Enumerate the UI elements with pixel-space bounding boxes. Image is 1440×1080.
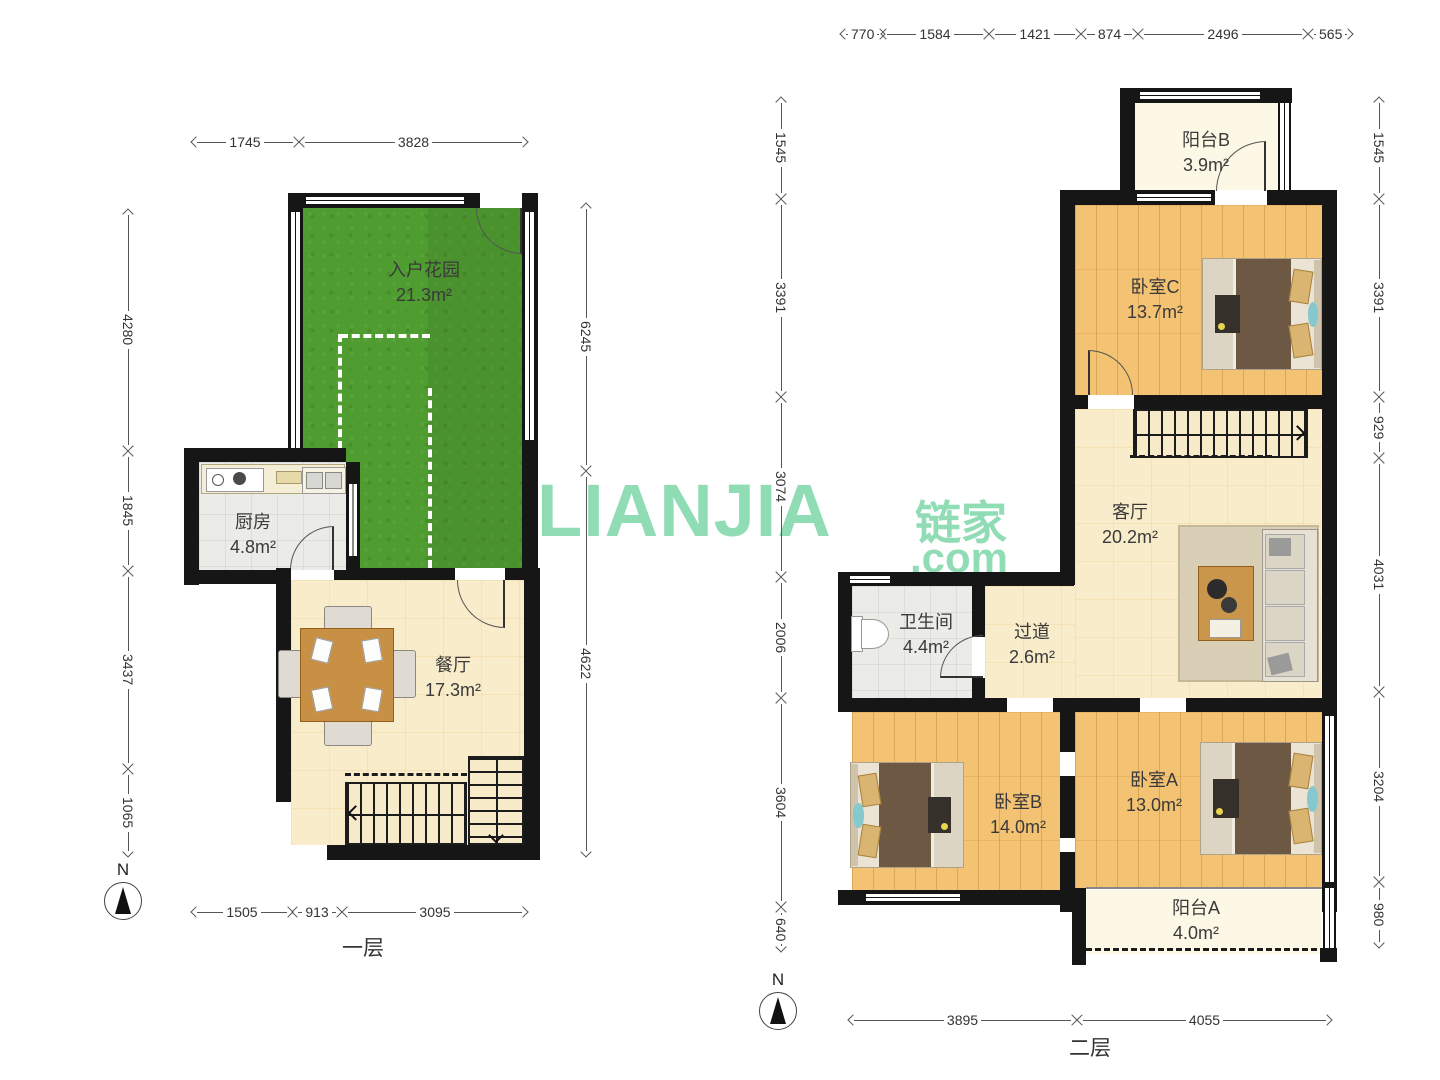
- stair-arrow-icon: [488, 828, 504, 844]
- door-opening: [1215, 190, 1267, 205]
- balcony-dashed-edge: [1086, 948, 1326, 951]
- plate-icon: [361, 638, 383, 664]
- room-name: 餐厅: [425, 653, 481, 678]
- wall: [1072, 888, 1086, 965]
- plate-icon: [310, 637, 333, 664]
- bed-duvet: [879, 763, 934, 867]
- stove-icon: [206, 468, 264, 492]
- garden-path: [340, 334, 430, 338]
- dim-left: 1845: [120, 452, 136, 570]
- window: [1323, 716, 1336, 882]
- room-name: 卧室A: [1126, 768, 1182, 793]
- wall: [1074, 698, 1337, 712]
- wall: [327, 845, 540, 860]
- burner-icon: [233, 472, 246, 485]
- tray-icon: [1209, 619, 1241, 638]
- wall: [1120, 88, 1135, 196]
- sink-basin-icon: [306, 472, 323, 489]
- room-area: 17.3m²: [425, 678, 481, 703]
- staircase: [1133, 409, 1308, 458]
- stair-edge-dashed: [345, 773, 467, 776]
- room-area: 4.8m²: [230, 535, 276, 560]
- wall: [972, 585, 985, 637]
- wall: [838, 572, 852, 712]
- chair: [324, 718, 372, 746]
- dim-right: 4031: [1371, 459, 1387, 691]
- room-label-bedroom-c: 卧室C 13.7m²: [1127, 275, 1183, 325]
- throw-pillow-icon: [1269, 538, 1291, 556]
- stair-arrow-icon: [348, 805, 364, 821]
- garden-path: [428, 388, 432, 568]
- window: [347, 484, 359, 556]
- dim-right: 6245: [578, 204, 594, 470]
- floor2-title: 二层: [1069, 1032, 1111, 1062]
- room-label-garden: 入户花园 21.3m²: [388, 258, 460, 308]
- wall-notch: [1060, 752, 1075, 776]
- room-area: 4.4m²: [899, 635, 953, 660]
- room-label-living: 客厅 20.2m²: [1102, 500, 1158, 550]
- staircase: [468, 756, 524, 845]
- dim-top: 874: [1082, 26, 1137, 42]
- window: [1278, 103, 1291, 191]
- bed-tray: [928, 797, 952, 833]
- sofa: [1262, 529, 1318, 682]
- room-label-bathroom: 卫生间 4.4m²: [899, 610, 953, 660]
- wall: [334, 568, 455, 580]
- appliance-icon: [276, 471, 302, 484]
- dim-right: 1545: [1371, 98, 1387, 198]
- room-name: 过道: [1009, 620, 1055, 645]
- window: [1323, 888, 1336, 950]
- compass: N: [104, 860, 142, 920]
- dim-left: 3391: [773, 200, 789, 396]
- room-name: 阳台A: [1172, 896, 1220, 921]
- window: [1140, 90, 1260, 101]
- sink-icon: [302, 467, 346, 494]
- compass-circle: [759, 992, 797, 1030]
- wall: [184, 570, 290, 584]
- dim-top: 770: [841, 26, 880, 42]
- bed: [1200, 742, 1322, 855]
- room-name: 阳台B: [1182, 128, 1230, 153]
- window: [523, 212, 536, 440]
- room-area: 14.0m²: [990, 815, 1046, 840]
- balcony-threshold: [1086, 887, 1322, 889]
- room-label-balcony-a: 阳台A 4.0m²: [1172, 896, 1220, 946]
- decor-icon: [1207, 579, 1227, 599]
- room-area: 13.7m²: [1127, 300, 1183, 325]
- dim-top: 3828: [300, 134, 527, 150]
- stair-centerline: [1135, 434, 1306, 436]
- wall: [1320, 948, 1337, 962]
- sofa-cushion: [1265, 606, 1305, 641]
- room-label-bedroom-b: 卧室B 14.0m²: [990, 790, 1046, 840]
- window: [850, 574, 890, 585]
- stove-knob-icon: [212, 474, 224, 486]
- door-opening: [480, 193, 522, 208]
- sink-basin-icon: [325, 472, 342, 489]
- window: [1137, 192, 1211, 203]
- compass: N: [759, 970, 797, 1030]
- wall-notch: [1060, 838, 1075, 852]
- door-opening: [1140, 698, 1186, 712]
- sofa-cushion: [1265, 570, 1305, 605]
- room-label-bedroom-a: 卧室A 13.0m²: [1126, 768, 1182, 818]
- room-name: 卫生间: [899, 610, 953, 635]
- compass-needle-icon: [770, 997, 786, 1024]
- compass-circle: [104, 882, 142, 920]
- dim-bottom: 3095: [343, 904, 527, 920]
- room-label-kitchen: 厨房 4.8m²: [230, 510, 276, 560]
- dim-top: 1745: [192, 134, 298, 150]
- dim-top: 2496: [1139, 26, 1307, 42]
- wall: [1060, 698, 1075, 912]
- room-area: 21.3m²: [388, 283, 460, 308]
- room-name: 卧室B: [990, 790, 1046, 815]
- dim-right: 3204: [1371, 693, 1387, 881]
- room-label-hallway: 过道 2.6m²: [1009, 620, 1055, 670]
- compass-north-label: N: [772, 970, 784, 989]
- dim-bottom: 3895: [849, 1012, 1076, 1028]
- lamp-icon: [941, 823, 948, 830]
- stair-arrow-icon: [1290, 425, 1306, 441]
- wall: [184, 448, 346, 462]
- window: [289, 212, 302, 452]
- coffee-table: [1198, 566, 1254, 641]
- bed: [850, 762, 964, 868]
- plate-icon: [311, 686, 333, 712]
- dim-top: 1421: [990, 26, 1080, 42]
- room-area: 20.2m²: [1102, 525, 1158, 550]
- bed-duvet: [1233, 259, 1291, 369]
- dim-top: 565: [1309, 26, 1347, 42]
- bed-tray: [1215, 295, 1240, 333]
- dim-right: 3391: [1371, 200, 1387, 396]
- dim-right: 929: [1371, 398, 1387, 457]
- dim-left: 1545: [773, 98, 789, 198]
- stair-centerline: [347, 814, 465, 816]
- bed: [1202, 258, 1322, 370]
- cushion-icon: [853, 803, 863, 827]
- wall: [524, 568, 540, 860]
- room-area: 13.0m²: [1126, 793, 1182, 818]
- wall: [1060, 190, 1075, 585]
- dim-right: 4622: [578, 472, 594, 856]
- door-opening: [1088, 395, 1134, 409]
- dim-left: 2006: [773, 578, 789, 697]
- room-area: 4.0m²: [1172, 921, 1220, 946]
- compass-north-label: N: [117, 860, 129, 879]
- bed-duvet: [1232, 743, 1291, 854]
- stair-edge-dashed: [1130, 455, 1272, 458]
- window: [306, 195, 464, 206]
- dim-bottom: 913: [293, 904, 341, 920]
- lamp-icon: [1216, 808, 1223, 815]
- dim-bottom: 1505: [192, 904, 292, 920]
- lamp-icon: [1218, 323, 1225, 330]
- compass-needle-icon: [115, 887, 131, 914]
- room-label-dining: 餐厅 17.3m²: [425, 653, 481, 703]
- wall: [184, 448, 199, 585]
- room-name: 厨房: [230, 510, 276, 535]
- door-opening: [1007, 698, 1053, 712]
- plate-icon: [361, 687, 383, 713]
- dim-left: 3074: [773, 398, 789, 576]
- staircase: [345, 782, 467, 845]
- dim-left: 3437: [120, 572, 136, 768]
- room-area: 2.6m²: [1009, 645, 1055, 670]
- dim-left: 640: [773, 908, 789, 950]
- room-name: 入户花园: [388, 258, 460, 283]
- dim-top: 1584: [882, 26, 988, 42]
- dim-left: 3604: [773, 699, 789, 906]
- room-name: 客厅: [1102, 500, 1158, 525]
- dim-right: 980: [1371, 883, 1387, 947]
- window: [866, 892, 960, 903]
- decor-icon: [1221, 597, 1237, 613]
- dining-table: [300, 628, 394, 722]
- dim-left: 1065: [120, 770, 136, 856]
- room-area: 3.9m²: [1182, 153, 1230, 178]
- room-label-balcony-b: 阳台B 3.9m²: [1182, 128, 1230, 178]
- floor1-title: 一层: [342, 932, 384, 962]
- room-name: 卧室C: [1127, 275, 1183, 300]
- bed-tray: [1213, 779, 1239, 817]
- dim-bottom: 4055: [1078, 1012, 1331, 1028]
- kitchen-counter: [201, 464, 345, 494]
- floorplan-canvas: LIANJIA 链家 .com: [0, 0, 1440, 1080]
- dim-left: 4280: [120, 210, 136, 450]
